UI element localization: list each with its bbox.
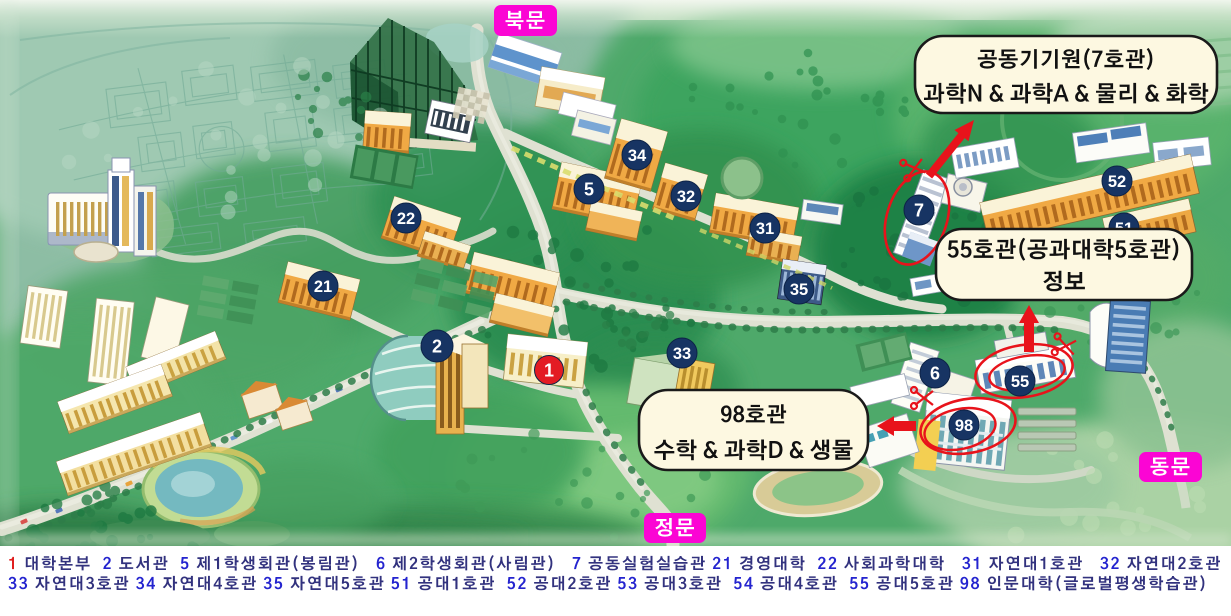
svg-text:31: 31 bbox=[756, 220, 774, 238]
svg-text:6: 6 bbox=[930, 364, 940, 384]
svg-text:98: 98 bbox=[955, 417, 973, 435]
svg-text:2: 2 bbox=[432, 337, 442, 357]
svg-text:22: 22 bbox=[397, 210, 415, 228]
svg-text:52: 52 bbox=[1108, 173, 1126, 191]
svg-text:34: 34 bbox=[628, 147, 647, 165]
svg-text:33: 33 bbox=[673, 345, 691, 363]
svg-text:32: 32 bbox=[677, 188, 695, 206]
svg-text:1: 1 bbox=[544, 361, 554, 381]
svg-text:5: 5 bbox=[584, 180, 594, 200]
svg-text:7: 7 bbox=[914, 201, 924, 221]
svg-text:55: 55 bbox=[1011, 373, 1029, 391]
svg-text:35: 35 bbox=[790, 281, 808, 299]
svg-text:21: 21 bbox=[314, 278, 332, 296]
